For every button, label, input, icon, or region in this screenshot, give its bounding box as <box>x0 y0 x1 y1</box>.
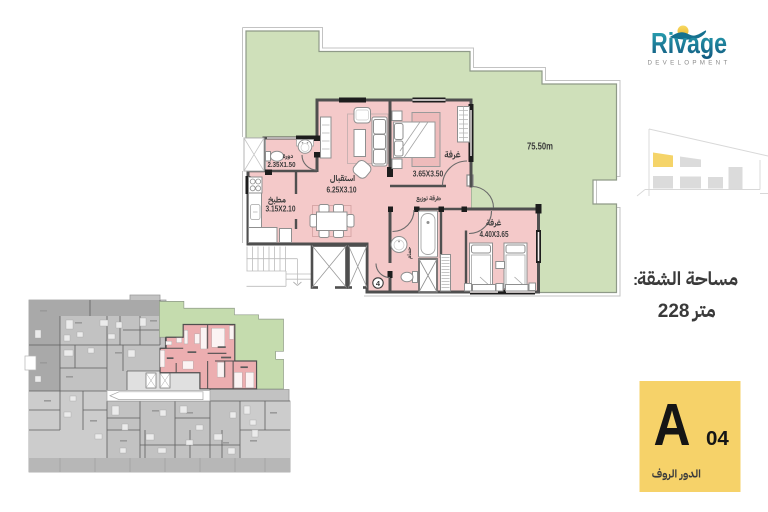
svg-text::: : <box>633 272 638 289</box>
svg-text:Rivage: Rivage <box>651 28 727 60</box>
svg-text:6.25X3.10: 6.25X3.10 <box>327 185 357 195</box>
svg-text:75.50m: 75.50m <box>527 142 553 153</box>
svg-text:2.35X1.50: 2.35X1.50 <box>268 160 296 169</box>
svg-text:A: A <box>654 392 691 458</box>
svg-text:DEVELOPMENT: DEVELOPMENT <box>647 60 730 67</box>
svg-text:04: 04 <box>706 427 729 450</box>
svg-text:3.15X2.10: 3.15X2.10 <box>266 205 296 214</box>
svg-text:3.65X3.50: 3.65X3.50 <box>413 168 444 178</box>
svg-text:4.40X3.65: 4.40X3.65 <box>480 229 509 239</box>
svg-text:228: 228 <box>658 301 690 322</box>
